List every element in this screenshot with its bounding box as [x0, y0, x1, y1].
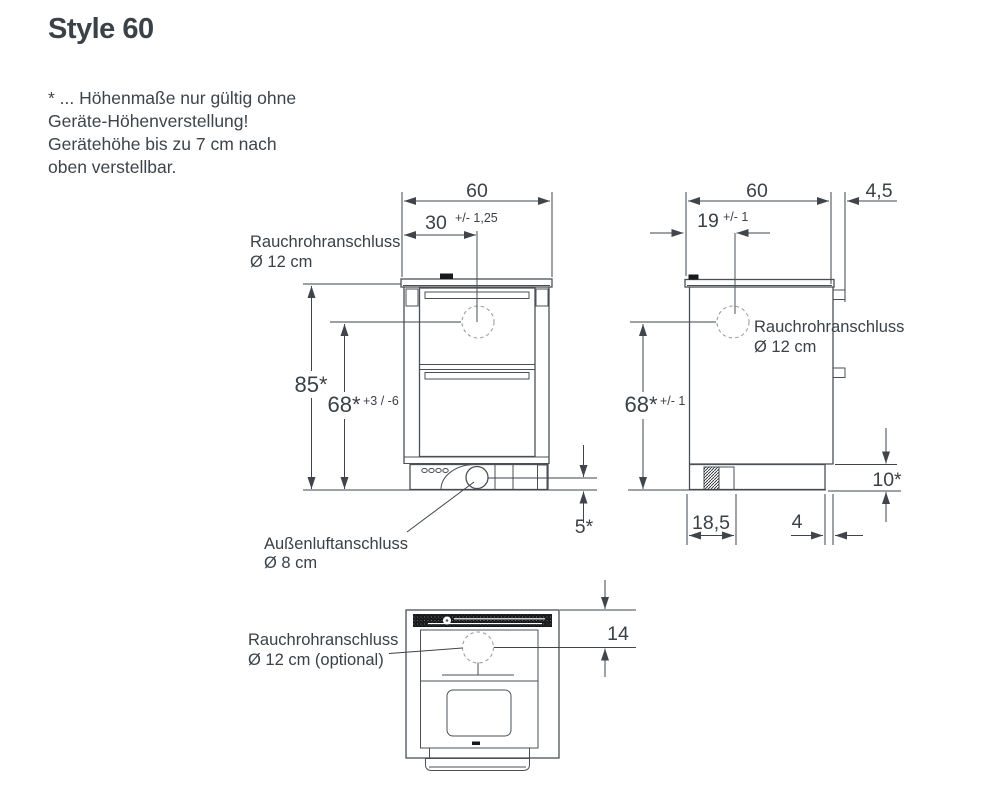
front-flue-offset-tolerance: +/- 1,25	[455, 211, 498, 225]
side-thermostat-knob	[689, 275, 699, 280]
side-base-front-dim: 18,5	[692, 512, 730, 534]
top-flue-diameter-label: Ø 12 cm (optional)	[248, 651, 384, 669]
top-front-latch-mark	[472, 742, 480, 746]
front-flue-height-dim: 68*	[327, 392, 360, 417]
side-lower-rear-stub	[833, 368, 845, 378]
side-upper-rear-stub	[833, 290, 845, 300]
side-base-rear-dim: 4	[792, 511, 803, 533]
front-view	[401, 231, 552, 490]
footnote-line-1: * ... Höhenmaße nur gültig ohne	[48, 88, 296, 108]
top-hotplate-window	[447, 690, 511, 736]
front-flue-label: Rauchrohranschluss	[250, 233, 400, 251]
top-flue-from-back-dim: 14	[607, 623, 629, 645]
front-flue-diameter-label: Ø 12 cm	[250, 253, 312, 271]
front-total-height-dim: 85*	[294, 372, 327, 397]
front-thermostat-knob	[440, 274, 453, 280]
top-view	[406, 610, 559, 771]
top-dimensions: 14 Rauchrohranschluss Ø 12 cm (optional)	[248, 580, 636, 677]
front-lower-door-handle-slot	[425, 373, 529, 380]
side-flue-height-dim: 68*	[624, 392, 657, 417]
front-air-label: Außenluftanschluss	[264, 535, 408, 553]
side-base-height-dim: 10*	[872, 469, 902, 491]
top-flue-label: Rauchrohranschluss	[248, 631, 398, 649]
side-flue-diameter-label: Ø 12 cm	[754, 338, 816, 356]
top-flue-leader-line	[389, 648, 463, 654]
front-flue-offset-dim: 30	[425, 212, 447, 234]
top-flue-connection-circle	[463, 632, 494, 663]
front-flue-connection-circle	[462, 306, 494, 338]
side-flue-height-tolerance: +/- 1	[660, 394, 685, 408]
side-rear-gap-dim: 4,5	[865, 180, 892, 202]
front-air-height-dim: 5*	[575, 516, 594, 538]
front-width-dim: 60	[466, 180, 488, 202]
footnote: * ... Höhenmaße nur gültig ohne Geräte-H…	[48, 88, 296, 177]
footnote-line-3: Gerätehöhe bis zu 7 cm nach	[48, 134, 277, 154]
technical-drawing: Style 60 * ... Höhenmaße nur gültig ohne…	[0, 0, 992, 802]
side-view	[685, 233, 845, 490]
front-base-hatched-bar	[538, 465, 548, 490]
top-base-outline	[426, 759, 530, 771]
side-labels: Rauchrohranschluss Ø 12 cm	[754, 318, 904, 356]
page-title: Style 60	[48, 13, 154, 45]
side-flue-connection-circle	[717, 306, 749, 338]
front-right-vent-grille	[536, 289, 548, 306]
front-flue-height-tolerance: +3 / -6	[363, 394, 399, 408]
side-flue-label: Rauchrohranschluss	[754, 318, 904, 336]
footnote-line-4: oben verstellbar.	[48, 157, 176, 177]
front-air-diameter-label: Ø 8 cm	[264, 554, 317, 572]
side-flue-offset-dim: 19	[697, 210, 719, 232]
side-depth-dim: 60	[746, 180, 768, 202]
footnote-line-2: Geräte-Höhenverstellung!	[48, 111, 248, 131]
datasheet-page: Style 60 * ... Höhenmaße nur gültig ohne…	[0, 0, 992, 802]
side-dimensions: 60 4,5 19 +/- 1 68* +/- 1 10* 18,5 4	[624, 180, 902, 545]
front-left-vent-grille	[406, 289, 418, 306]
side-flue-offset-tolerance: +/- 1	[723, 210, 748, 224]
